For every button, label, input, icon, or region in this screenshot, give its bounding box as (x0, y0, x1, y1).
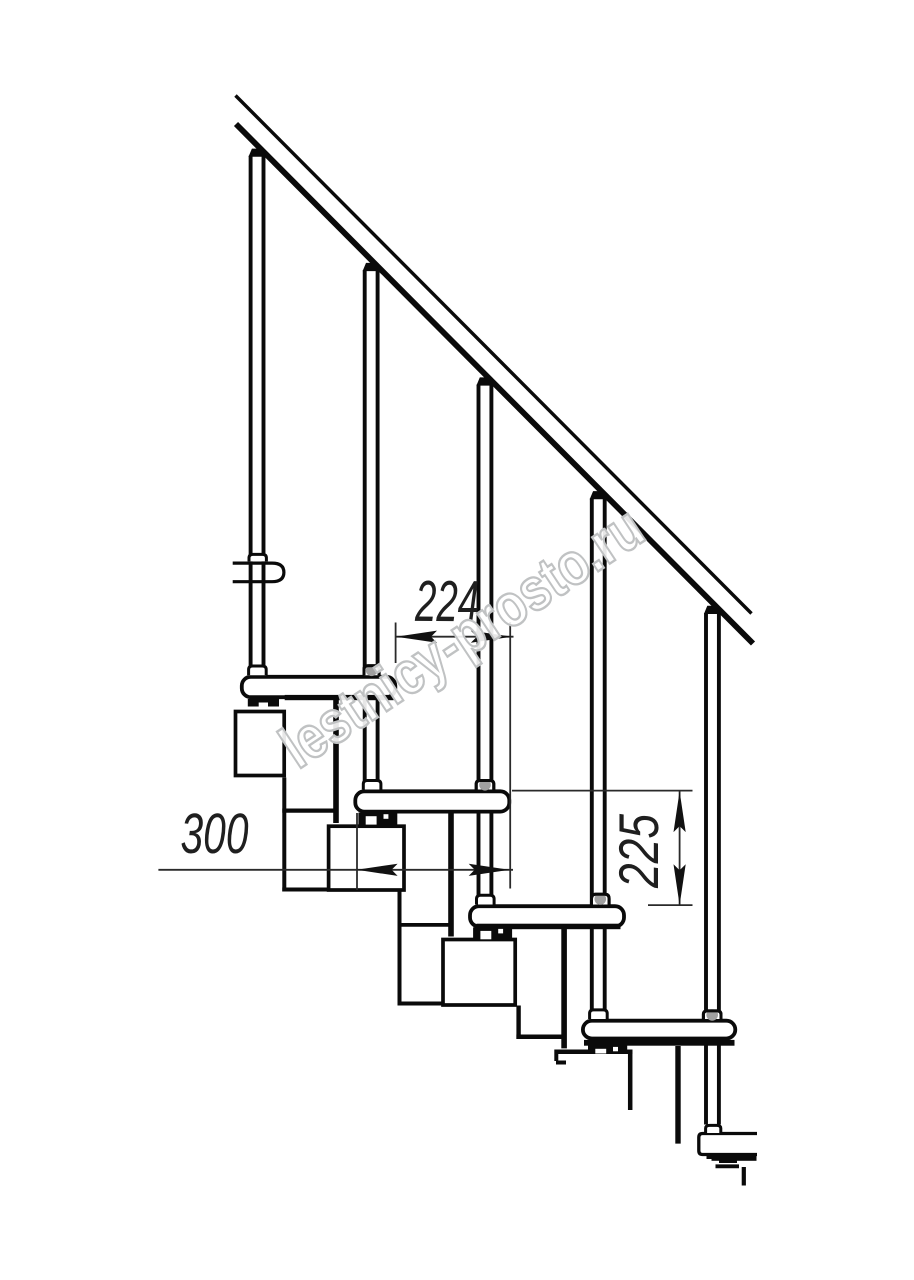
svg-text:300: 300 (181, 802, 249, 866)
svg-text:225: 225 (607, 813, 670, 888)
